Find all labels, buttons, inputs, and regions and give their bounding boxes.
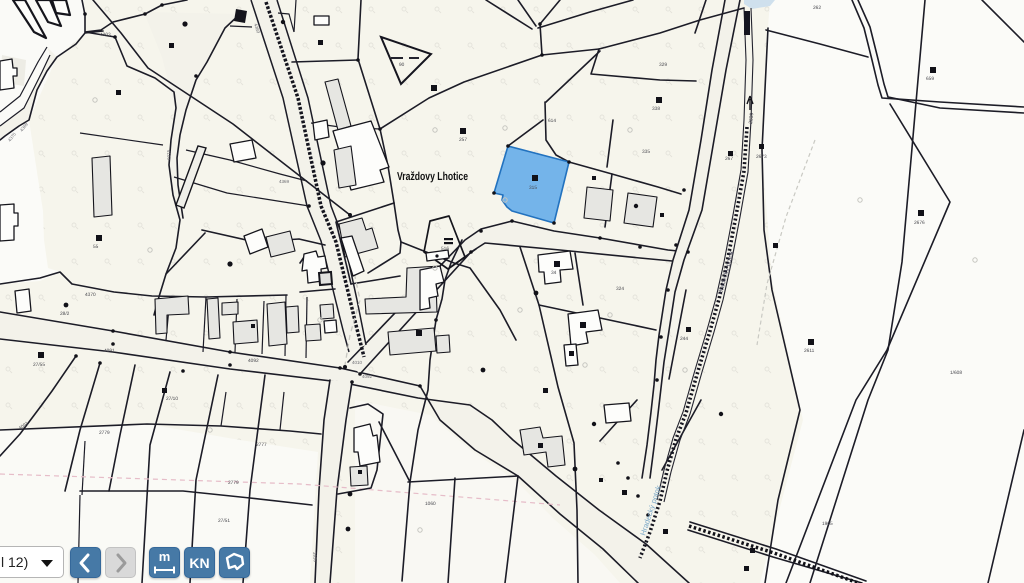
svg-text:4091: 4091	[104, 348, 115, 354]
svg-text:659: 659	[926, 76, 934, 82]
svg-text:55: 55	[93, 244, 99, 250]
svg-text:1905: 1905	[822, 521, 833, 527]
svg-text:516: 516	[441, 246, 449, 252]
svg-text:28/2: 28/2	[60, 311, 70, 317]
svg-text:34: 34	[551, 270, 557, 276]
svg-text:4092: 4092	[362, 374, 373, 379]
svg-text:335: 335	[642, 149, 650, 155]
svg-text:4010: 4010	[352, 360, 363, 365]
svg-text:Vraždovy Lhotice: Vraždovy Lhotice	[397, 171, 468, 183]
svg-text:2777: 2777	[256, 442, 267, 448]
svg-text:244: 244	[680, 336, 688, 342]
svg-text:2779: 2779	[99, 430, 110, 436]
svg-text:4370: 4370	[85, 292, 96, 298]
svg-text:1060: 1060	[425, 501, 436, 507]
svg-text:329: 329	[659, 62, 667, 68]
svg-text:4092: 4092	[248, 358, 259, 364]
svg-text:27/55: 27/55	[33, 362, 45, 368]
svg-text:m: m	[159, 549, 171, 564]
svg-text:315: 315	[529, 185, 537, 191]
svg-text:338: 338	[652, 106, 660, 112]
svg-text:27/10: 27/10	[166, 396, 178, 402]
svg-text:257: 257	[459, 137, 467, 143]
svg-text:27/51: 27/51	[218, 518, 230, 524]
svg-text:267: 267	[725, 156, 733, 162]
svg-text:614: 614	[548, 118, 556, 124]
svg-text:1/608: 1/608	[950, 370, 962, 376]
svg-text:324: 324	[616, 286, 624, 292]
svg-text:2779: 2779	[228, 480, 239, 486]
svg-text:4369: 4369	[279, 179, 290, 184]
svg-text:3936: 3936	[312, 552, 318, 563]
svg-text:2611: 2611	[804, 348, 815, 354]
svg-text:90: 90	[399, 62, 405, 68]
svg-text:4103: 4103	[166, 150, 172, 161]
svg-text:2676: 2676	[914, 220, 925, 226]
svg-text:2673: 2673	[756, 154, 767, 160]
svg-text:4303: 4303	[100, 32, 111, 38]
svg-text:262: 262	[813, 5, 821, 11]
